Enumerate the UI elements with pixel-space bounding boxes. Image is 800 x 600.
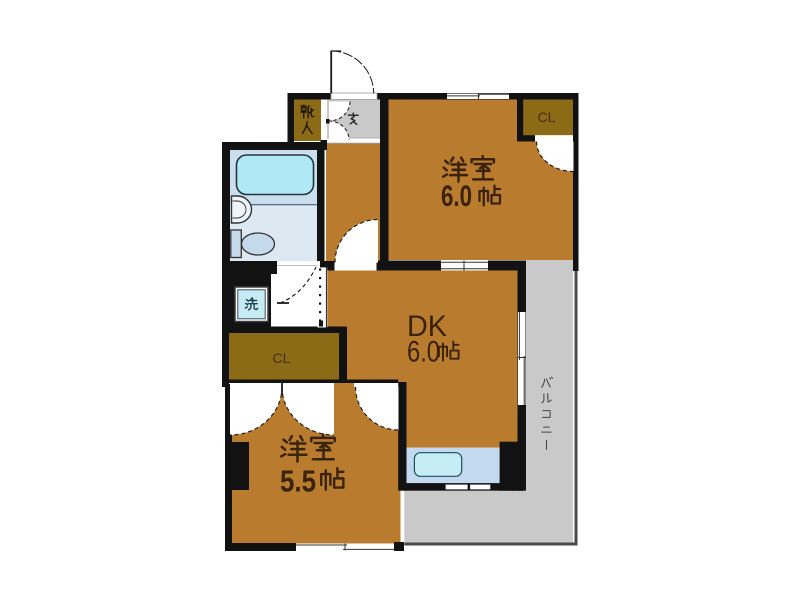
svg-text:5.5: 5.5 [280,464,316,499]
svg-text:CL: CL [538,109,556,125]
svg-text:CL: CL [273,350,291,366]
svg-text:6.0: 6.0 [441,180,472,213]
svg-text:6.0: 6.0 [407,336,440,369]
